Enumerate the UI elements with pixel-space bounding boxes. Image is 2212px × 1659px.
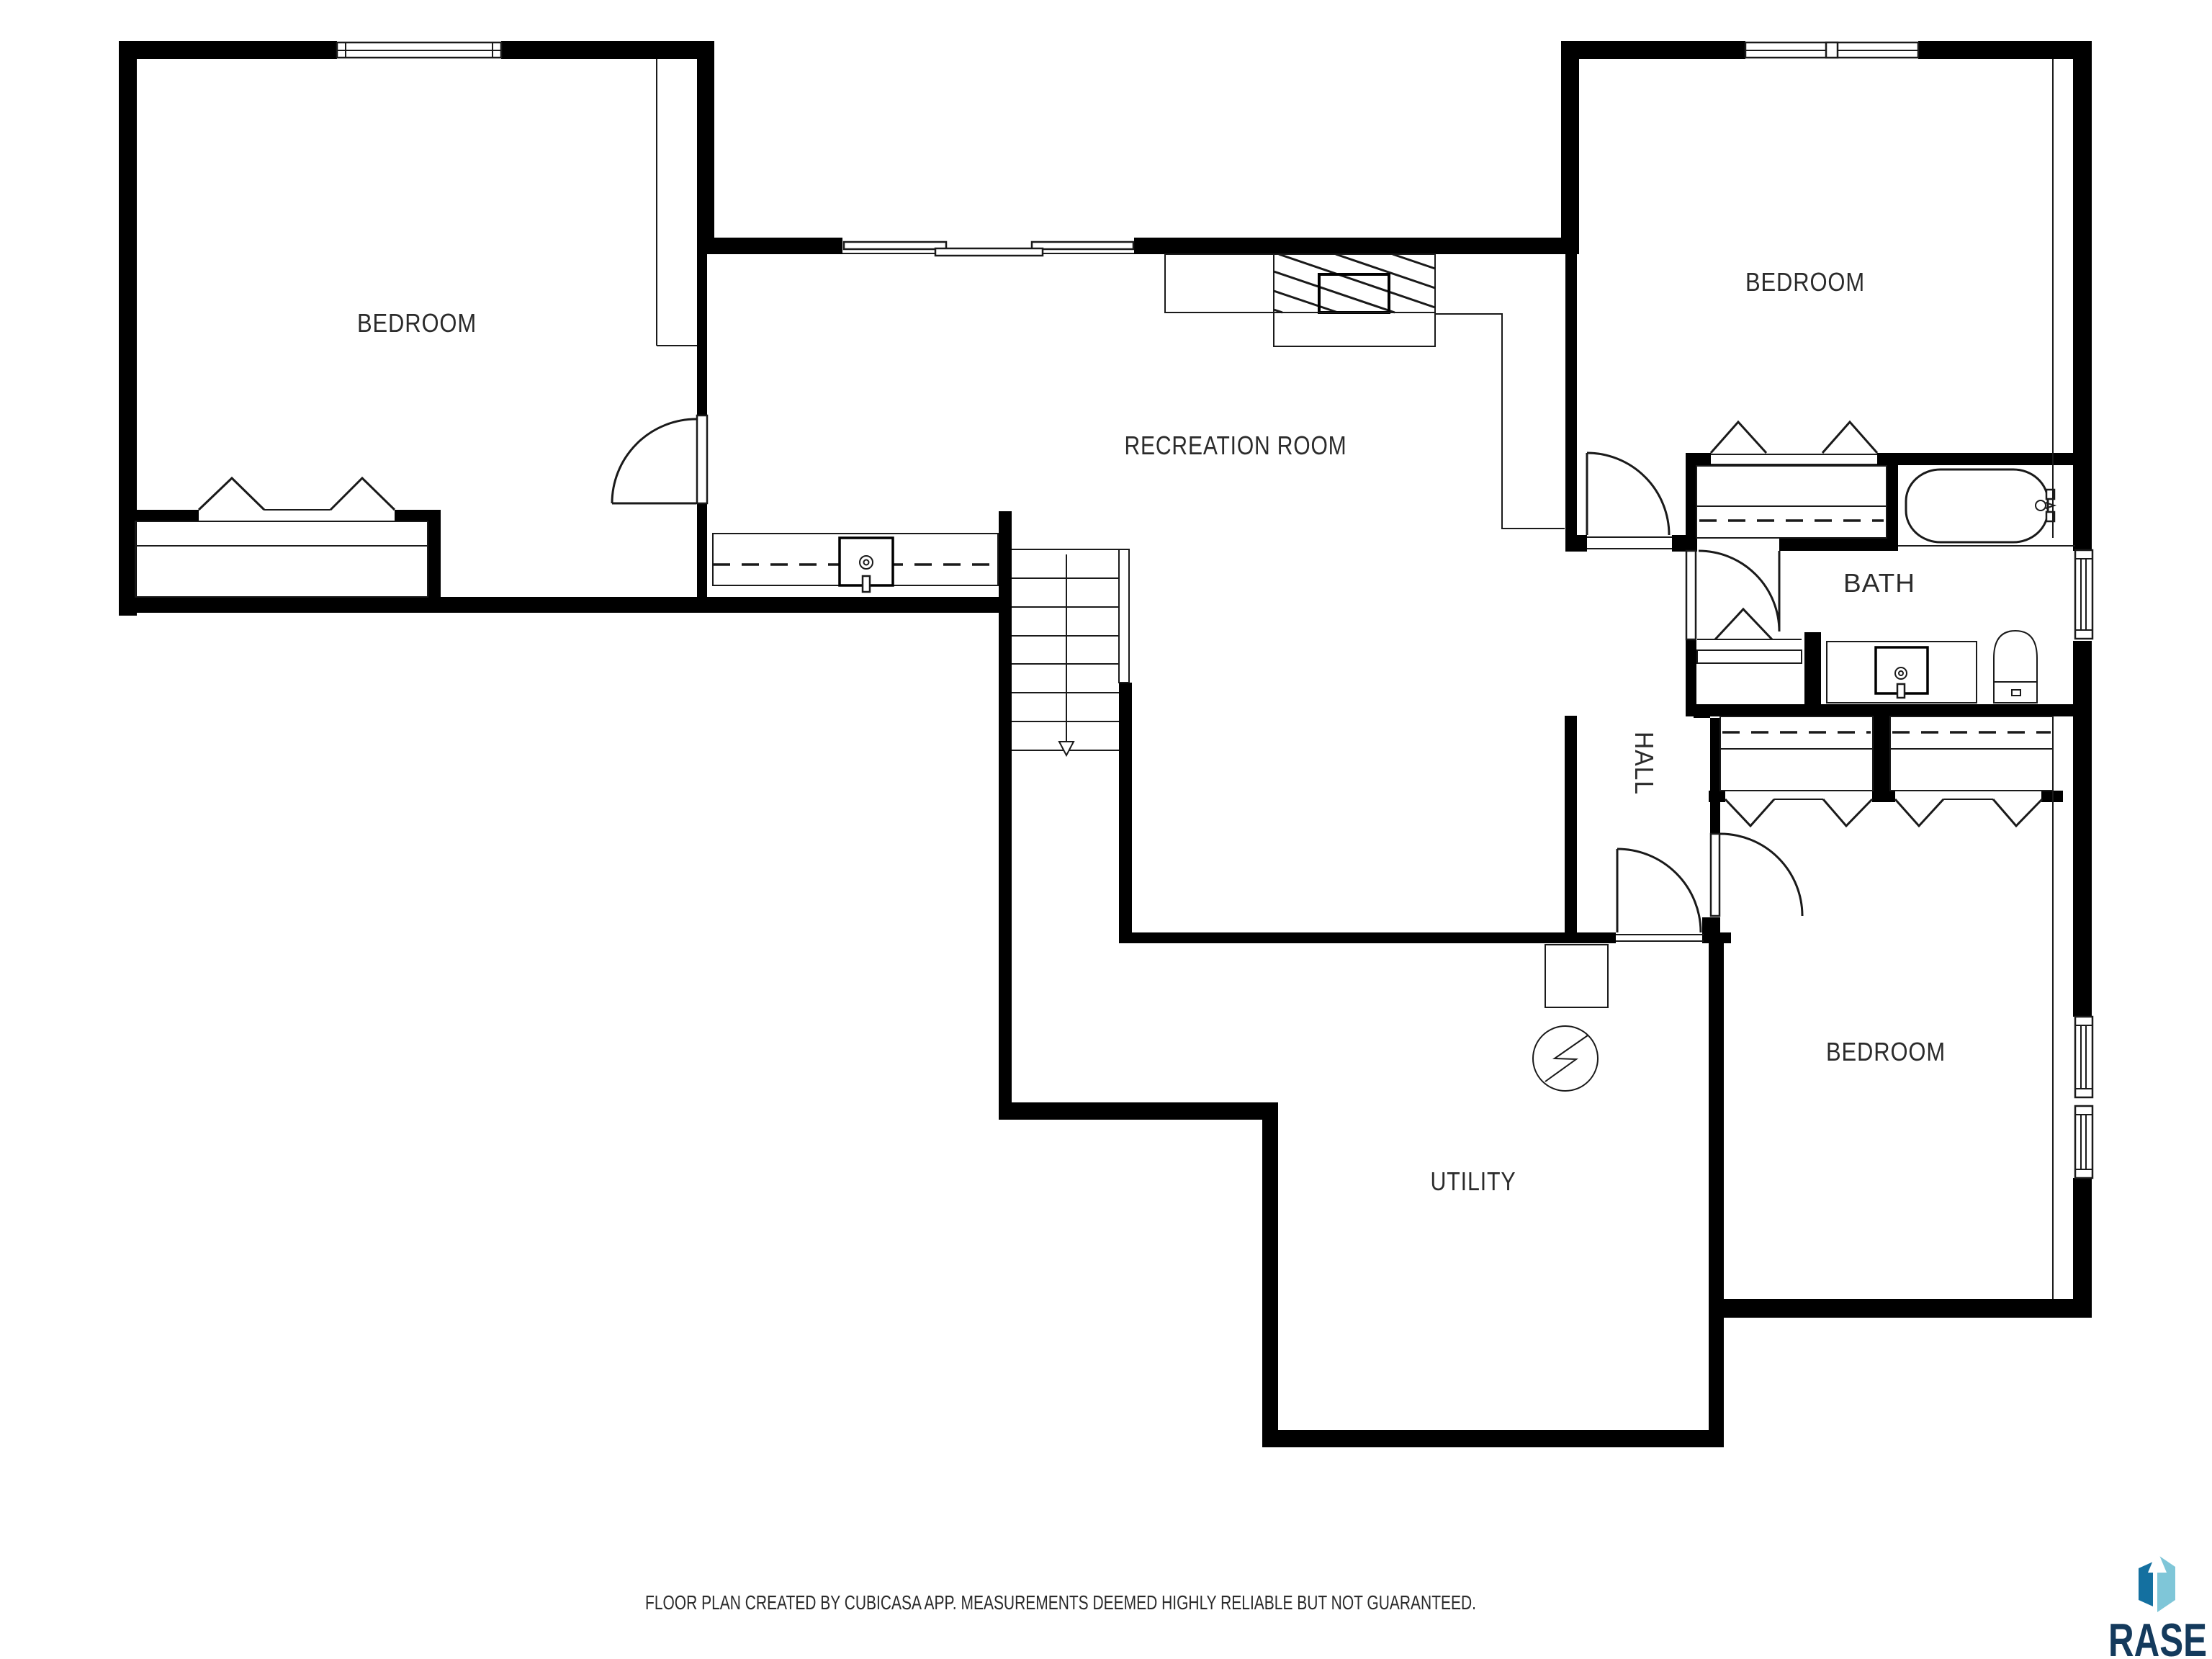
svg-text:BEDROOM: BEDROOM [357, 308, 477, 338]
svg-text:BEDROOM: BEDROOM [1826, 1037, 1946, 1066]
svg-text:RECREATION ROOM: RECREATION ROOM [1125, 431, 1347, 460]
svg-text:HALL: HALL [1629, 732, 1659, 795]
svg-text:UTILITY: UTILITY [1431, 1166, 1516, 1196]
svg-text:BATH: BATH [1843, 568, 1915, 598]
svg-text:BEDROOM: BEDROOM [1745, 267, 1865, 297]
svg-text:RASE: RASE [2108, 1614, 2207, 1659]
svg-text:FLOOR PLAN CREATED BY CUBICASA: FLOOR PLAN CREATED BY CUBICASA APP. MEAS… [645, 1591, 1476, 1614]
